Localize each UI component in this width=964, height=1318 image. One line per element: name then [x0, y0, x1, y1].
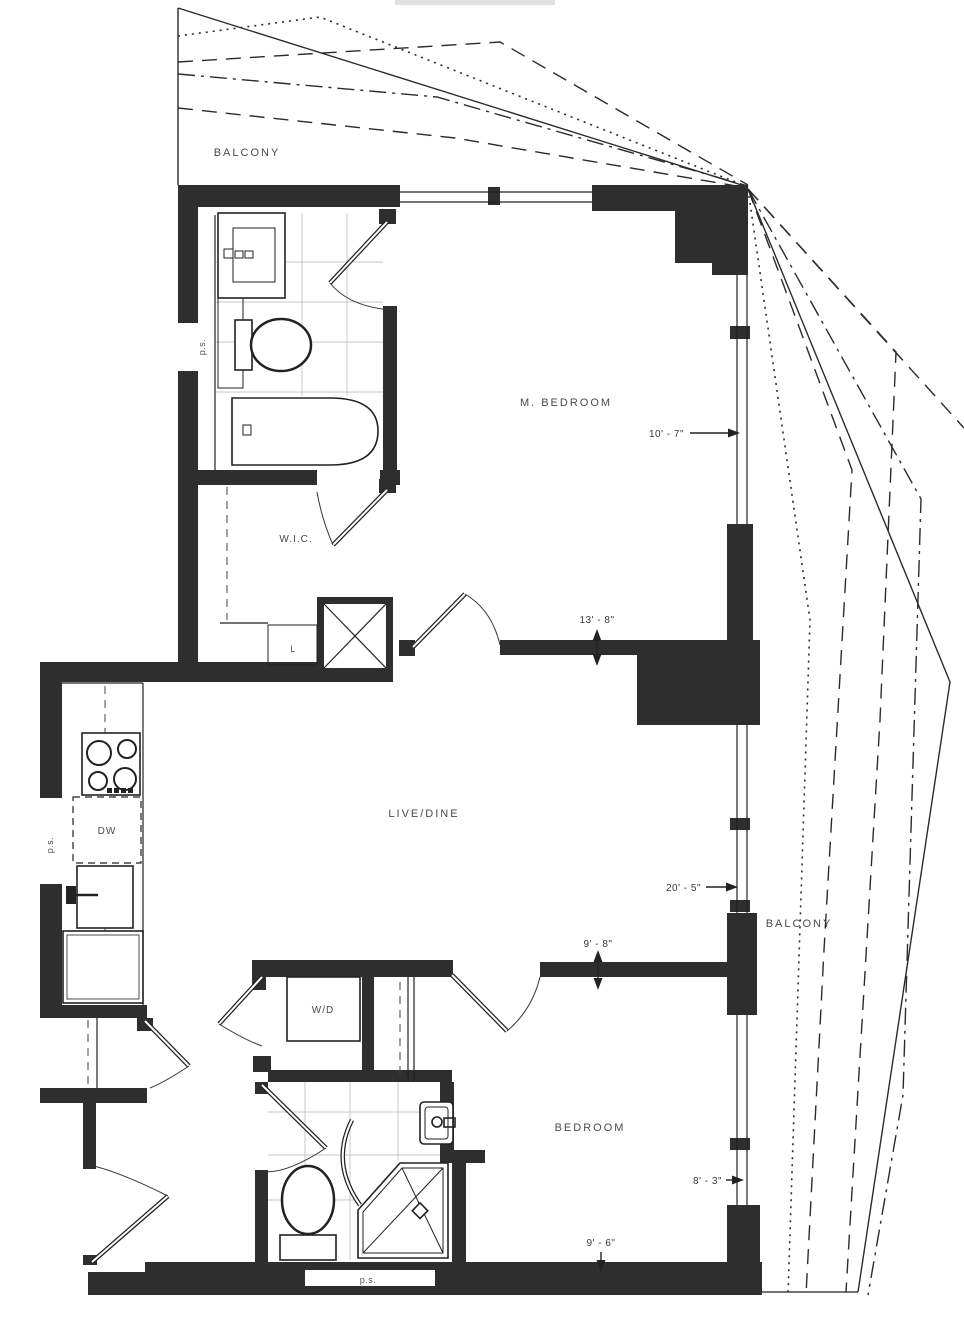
svg-text:9' - 8": 9' - 8" — [584, 939, 613, 950]
svg-text:8' - 3": 8' - 3" — [693, 1176, 722, 1187]
bedroom-label: BEDROOM — [555, 1122, 626, 1134]
dim-bedroom-depth: 8' - 3" — [693, 1176, 744, 1188]
ps-kitchen-label: p.s. — [45, 837, 55, 854]
live-dine-label: LIVE/DINE — [388, 808, 459, 820]
hall-closet-door — [145, 1021, 189, 1088]
linen-label: L — [290, 644, 296, 654]
floorplan-drawing: DW — [0, 0, 964, 1318]
ps-bath2-label: p.s. — [360, 1275, 377, 1285]
balcony-right-label: BALCONY — [766, 918, 833, 930]
wic-door — [317, 490, 387, 545]
bathroom1-door — [330, 222, 390, 310]
bedroom-door — [452, 975, 540, 1031]
walls — [40, 185, 762, 1295]
balcony-top-label: BALCONY — [214, 147, 281, 159]
dim-m-bedroom-width: 10' - 7" — [649, 429, 740, 441]
dimensions: 10' - 7" 13' - 8" 20' - 5" 9' - 8" 8' - … — [579, 429, 744, 1273]
cooktop-icon — [82, 733, 140, 795]
bathroom2-door — [262, 1085, 326, 1172]
ps-bath1-label: p.s. — [197, 339, 207, 356]
svg-text:13' - 8": 13' - 8" — [579, 615, 614, 626]
entry-door — [90, 1165, 168, 1262]
svg-text:20' - 5": 20' - 5" — [666, 883, 701, 894]
washer-dryer-label: W/D — [312, 1005, 334, 1016]
dishwasher-icon: DW — [73, 797, 141, 863]
doors — [90, 222, 540, 1262]
toilet-icon — [235, 319, 311, 371]
master-bathroom — [218, 213, 378, 465]
balcony-right-outline-lines — [748, 189, 964, 1295]
cropped-title-artifact — [395, 0, 555, 5]
laundry-closet: W/D — [287, 977, 360, 1041]
fridge-icon — [63, 931, 143, 1003]
kitchen-sink-icon — [66, 866, 133, 928]
bathtub-icon — [232, 398, 378, 465]
m-bedroom-label: M. BEDROOM — [520, 397, 612, 409]
dishwasher-label: DW — [98, 826, 117, 837]
dim-live-dine-length: 20' - 5" — [666, 883, 738, 895]
laundry-door — [219, 977, 262, 1046]
mbedroom-door — [413, 594, 500, 647]
svg-text:10' - 7": 10' - 7" — [649, 429, 684, 440]
floorplan-page: DW — [0, 0, 964, 1318]
sink2-icon — [420, 1102, 455, 1144]
vanity-sink-icon — [218, 213, 285, 298]
toilet2-icon — [280, 1166, 336, 1260]
balcony-top-outline-lines — [178, 8, 748, 188]
shaft-box — [317, 597, 393, 675]
kitchen: DW — [63, 733, 143, 1003]
svg-text:9' - 6": 9' - 6" — [587, 1238, 616, 1249]
wic-label: W.I.C. — [279, 534, 312, 545]
